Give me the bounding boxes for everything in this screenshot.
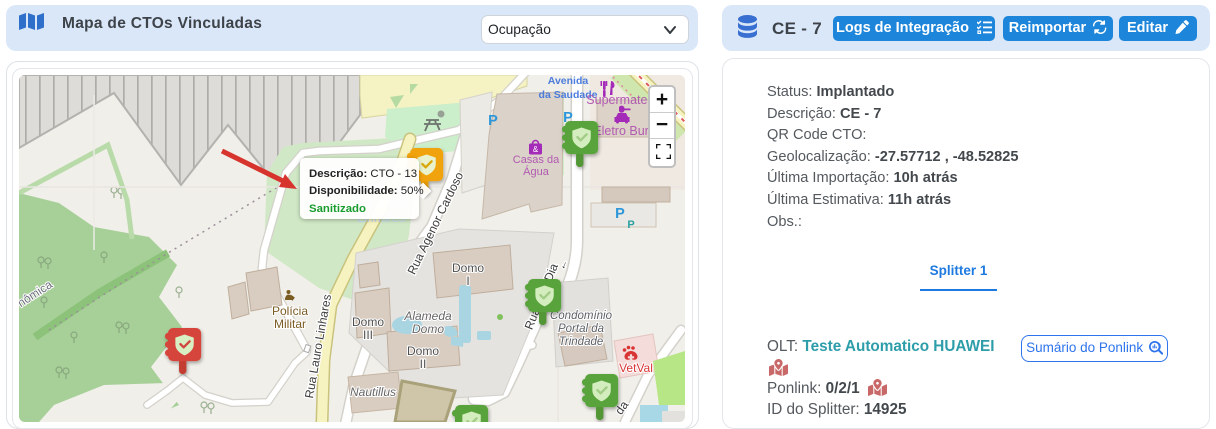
svg-text:I: I	[466, 274, 469, 288]
svg-text:II: II	[420, 357, 427, 371]
svg-text:Alameda: Alameda	[403, 309, 452, 323]
svg-text:Militar: Militar	[274, 317, 306, 331]
svg-text:Água: Água	[523, 165, 550, 178]
svg-text:Polícia: Polícia	[272, 304, 308, 318]
svg-text:Domo: Domo	[452, 261, 484, 275]
svg-text:Domo: Domo	[352, 315, 384, 329]
svg-text:Nautillus: Nautillus	[350, 385, 396, 399]
svg-text:Condomínio: Condomínio	[550, 310, 613, 322]
svg-text:Domo: Domo	[412, 322, 444, 336]
svg-text:Supermatec: Supermatec	[586, 93, 653, 107]
svg-text:Casas da: Casas da	[513, 154, 560, 166]
svg-text:Domo: Domo	[407, 344, 439, 358]
svg-text:VetVal: VetVal	[619, 361, 653, 375]
svg-text:P: P	[488, 113, 498, 129]
svg-text:Trindade: Trindade	[559, 336, 604, 348]
svg-text:&: &	[533, 145, 539, 154]
svg-text:P: P	[627, 219, 634, 231]
svg-text:Portal da: Portal da	[558, 323, 604, 335]
svg-text:III: III	[363, 328, 373, 342]
svg-text:Avenida: Avenida	[548, 75, 589, 87]
svg-text:P: P	[615, 206, 625, 222]
